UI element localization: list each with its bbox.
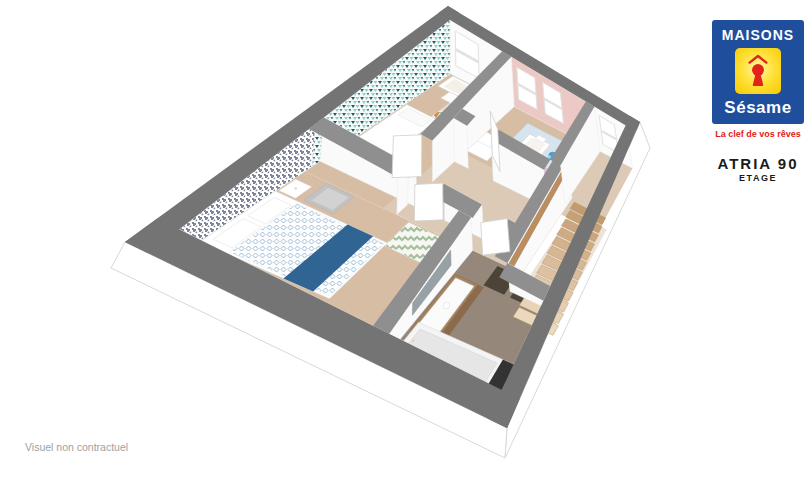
faucet — [412, 340, 414, 342]
page: MAISONS Sésame La clef de vos rêves ATRI… — [0, 0, 811, 480]
disclaimer-text: Visuel non contractuel — [25, 441, 128, 453]
open-door — [414, 183, 443, 221]
plan-level-label: ETAGE — [706, 173, 810, 183]
lamp — [295, 187, 297, 189]
wall-pink-west-a-face — [454, 118, 469, 168]
brand-logo: MAISONS Sésame La clef de vos rêves ATRI… — [706, 20, 810, 183]
plan-model-title: ATRIA 90 — [706, 155, 810, 172]
sink-basin — [443, 302, 449, 308]
floorplan-3d-rendering — [0, 0, 811, 480]
open-door — [392, 135, 422, 178]
logo-yellow-square — [735, 48, 781, 94]
keyhole-icon — [744, 54, 772, 88]
logo-text-sesame: Sésame — [712, 98, 804, 118]
logo-text-maisons: MAISONS — [712, 27, 804, 43]
open-door — [481, 219, 510, 256]
logo-box: MAISONS Sésame — [712, 20, 804, 124]
logo-tagline: La clef de vos rêves — [706, 129, 810, 139]
